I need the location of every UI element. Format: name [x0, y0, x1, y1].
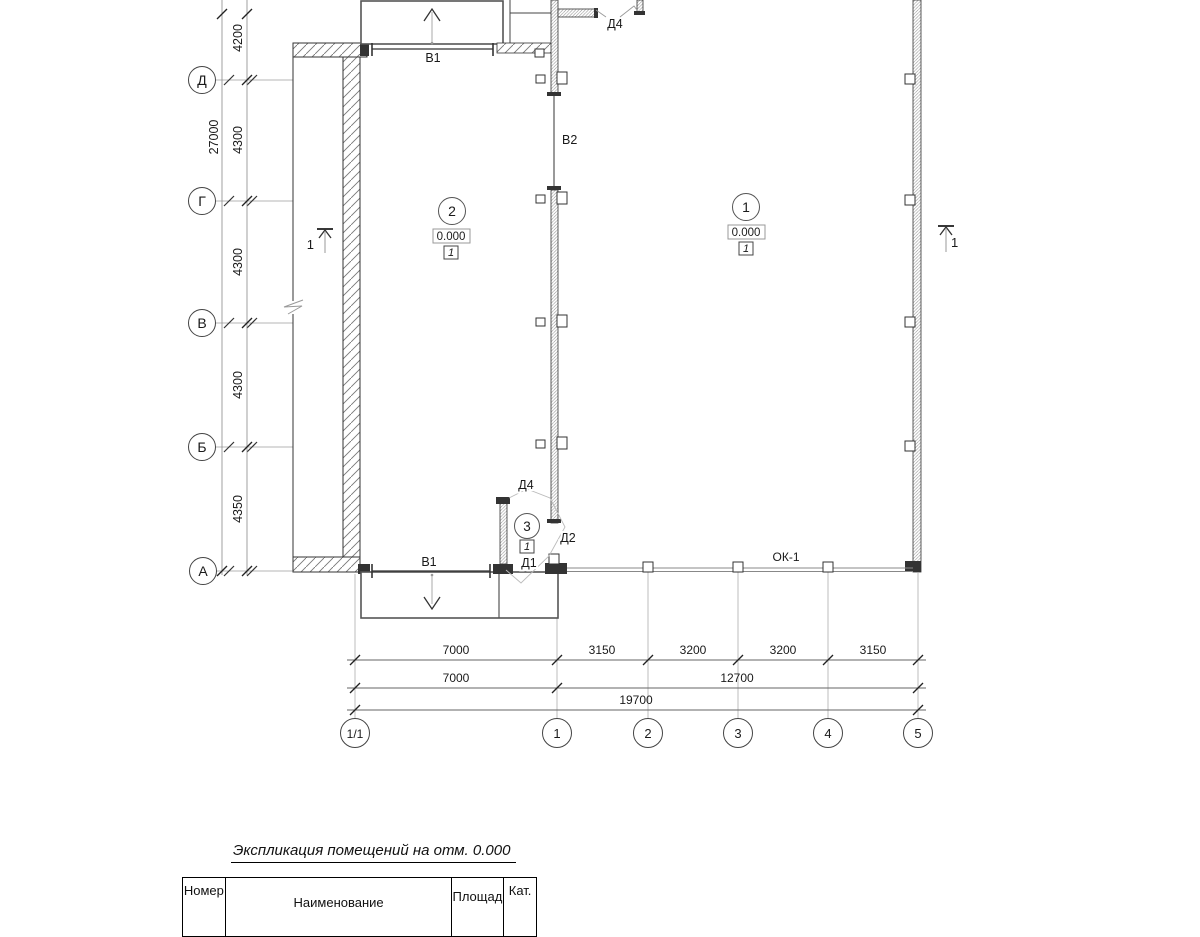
room-2-category: 1	[448, 247, 454, 259]
room-3-number: 3	[523, 519, 531, 534]
schedule-col-area: Площадь	[452, 878, 504, 936]
schedule-col-cat: Кат.	[504, 878, 536, 936]
room-2-number: 2	[448, 203, 456, 219]
dim-7000-1: 7000	[443, 643, 470, 657]
window-band: ОК-1	[567, 550, 913, 572]
dim-3200-2: 3200	[770, 643, 797, 657]
vertical-dim-lines	[217, 0, 252, 576]
dim-3150-1: 3150	[589, 643, 616, 657]
grid-col-2: 2	[644, 726, 651, 741]
schedule-col-number: Номер	[183, 878, 226, 936]
dim-4300-a: 4300	[231, 126, 245, 154]
room-3-category: 1	[524, 541, 530, 553]
top-mid-walls	[497, 0, 553, 57]
top-right-wall: Д4	[558, 0, 645, 31]
grid-col-1: 1	[553, 726, 560, 741]
gate-top: В1	[361, 1, 503, 65]
dim-19700: 19700	[619, 693, 653, 707]
section-mark-left: 1	[307, 229, 333, 253]
grid-row-d: Д	[197, 72, 207, 88]
dim-7000-2: 7000	[443, 671, 470, 685]
d1-label: Д1	[521, 556, 536, 570]
d4-top-label: Д4	[607, 17, 622, 31]
dim-4300-b: 4300	[231, 248, 245, 276]
room-marker-3: 3 1	[515, 514, 540, 554]
floor-plan: 4200 4300 4300 4300 4350 27000 7000 3150…	[0, 0, 1200, 900]
grid-row-a: А	[198, 563, 208, 579]
dim-4350: 4350	[231, 495, 245, 523]
room-schedule-table: Номер Наименование Площадь Кат.	[182, 877, 537, 937]
b2-opening-label: В2	[562, 133, 577, 147]
drawing-sheet: { "plan": { "grid": { "rows": [ {"label"…	[0, 0, 1200, 900]
d2-label: Д2	[560, 531, 575, 545]
section-right-label: 1	[951, 235, 958, 250]
grid-col-bubbles: 1/1 1 2 3 4 5	[341, 719, 933, 748]
room-1-category: 1	[743, 243, 749, 255]
room-1-number: 1	[742, 199, 750, 215]
room-1-elevation: 0.000	[732, 227, 761, 239]
ok1-window-label: ОК-1	[773, 550, 800, 564]
grid-row-v: В	[197, 315, 206, 331]
room-marker-2: 2 0.000 1	[433, 198, 470, 260]
gate-bottom-label: В1	[421, 555, 436, 569]
dim-4200: 4200	[231, 24, 245, 52]
left-wall	[284, 43, 370, 574]
grid-row-g: Г	[198, 193, 206, 209]
grid-col-4: 4	[824, 726, 831, 741]
room-marker-1: 1 0.000 1	[728, 194, 765, 256]
dim-27000: 27000	[207, 120, 221, 155]
break-symbol	[284, 300, 303, 314]
grid-lines	[216, 80, 918, 719]
section-mark-right: 1	[938, 226, 958, 252]
right-wall	[905, 0, 921, 572]
dim-4300-c: 4300	[231, 371, 245, 399]
schedule-col-name: Наименование	[226, 878, 453, 936]
grid-col-1-1: 1/1	[347, 727, 364, 741]
d4-vestibule-label: Д4	[518, 478, 533, 492]
dim-3200-1: 3200	[680, 643, 707, 657]
section-left-label: 1	[307, 237, 314, 252]
grid-row-b: Б	[197, 439, 206, 455]
dim-12700: 12700	[720, 671, 754, 685]
grid-col-5: 5	[914, 726, 921, 741]
gate-top-label: В1	[425, 51, 440, 65]
horizontal-dim-labels: 7000 3150 3200 3200 3150 7000 12700 1970…	[443, 643, 887, 707]
middle-wall: В2	[536, 0, 577, 523]
schedule-title: Экспликация помещений на отм. 0.000	[231, 842, 516, 863]
grid-col-3: 3	[734, 726, 741, 741]
room-2-elevation: 0.000	[437, 231, 466, 243]
dim-3150-2: 3150	[860, 643, 887, 657]
